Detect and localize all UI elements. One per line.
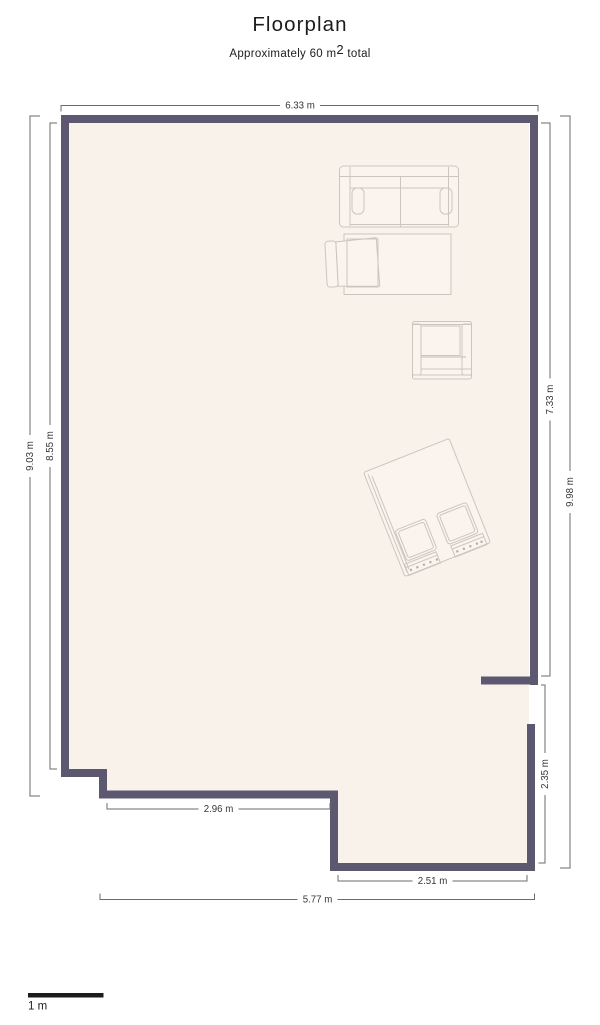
svg-text:2.96 m: 2.96 m	[204, 804, 234, 815]
svg-text:2.51 m: 2.51 m	[418, 876, 448, 887]
svg-text:7.33 m: 7.33 m	[545, 385, 556, 415]
svg-text:1 m: 1 m	[28, 1001, 47, 1013]
svg-text:5.77 m: 5.77 m	[303, 895, 333, 906]
svg-text:9.98 m: 9.98 m	[565, 477, 576, 507]
svg-text:8.55 m: 8.55 m	[45, 431, 56, 461]
svg-text:2.35 m: 2.35 m	[540, 759, 551, 789]
svg-text:6.33 m: 6.33 m	[285, 101, 315, 112]
svg-text:9.03 m: 9.03 m	[25, 441, 36, 471]
